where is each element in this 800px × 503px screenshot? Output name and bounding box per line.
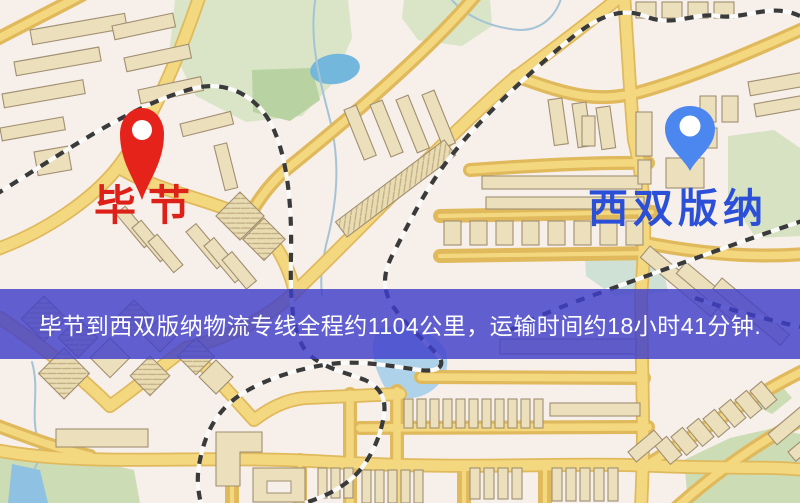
origin-city-label: 毕节 — [94, 172, 202, 233]
base-map — [0, 0, 800, 503]
route-info-banner: 毕节到西双版纳物流专线全程约1104公里，运输时间约18小时41分钟. — [0, 289, 800, 359]
map-canvas[interactable]: 毕节 西双版纳 毕节到西双版纳物流专线全程约1104公里，运输时间约18小时41… — [0, 0, 800, 503]
road-network — [0, 0, 800, 503]
destination-city-label: 西双版纳 — [588, 176, 768, 234]
route-info-text: 毕节到西双版纳物流专线全程约1104公里，运输时间约18小时41分钟. — [39, 307, 762, 341]
